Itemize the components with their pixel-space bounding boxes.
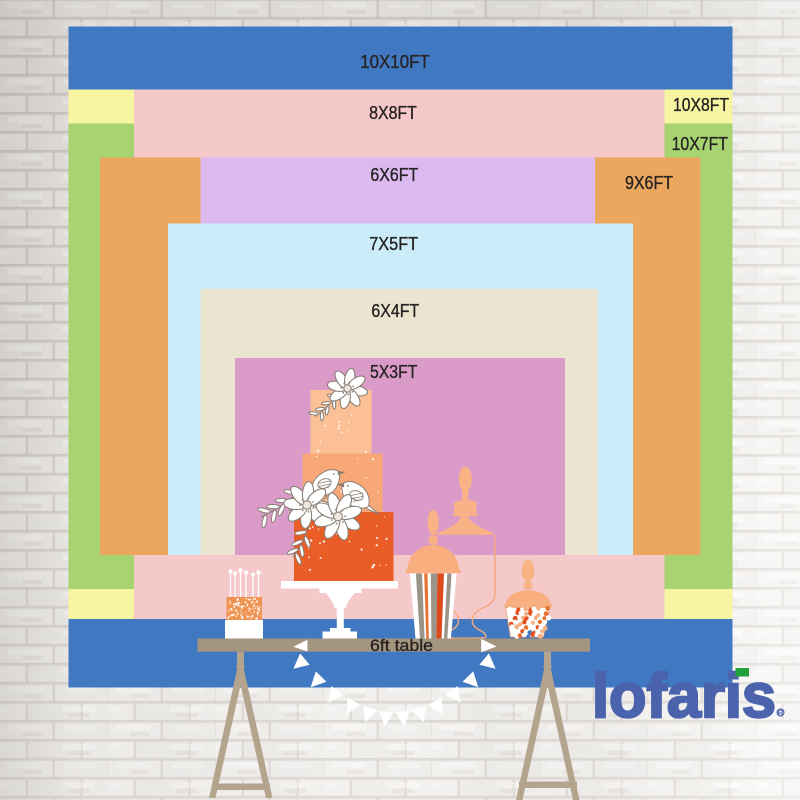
svg-text:8X8FT: 8X8FT — [369, 102, 417, 123]
svg-text:10X8FT: 10X8FT — [673, 94, 729, 115]
svg-text:R: R — [778, 708, 784, 717]
svg-text:9X6FT: 9X6FT — [625, 172, 673, 193]
svg-text:5X3FT: 5X3FT — [370, 361, 418, 382]
svg-text:6X4FT: 6X4FT — [371, 300, 419, 321]
svg-text:6ft table: 6ft table — [370, 637, 433, 655]
svg-text:10X7FT: 10X7FT — [672, 133, 728, 154]
svg-text:6X6FT: 6X6FT — [370, 164, 418, 185]
svg-text:10X10FT: 10X10FT — [360, 51, 429, 72]
svg-text:7X5FT: 7X5FT — [369, 233, 418, 254]
